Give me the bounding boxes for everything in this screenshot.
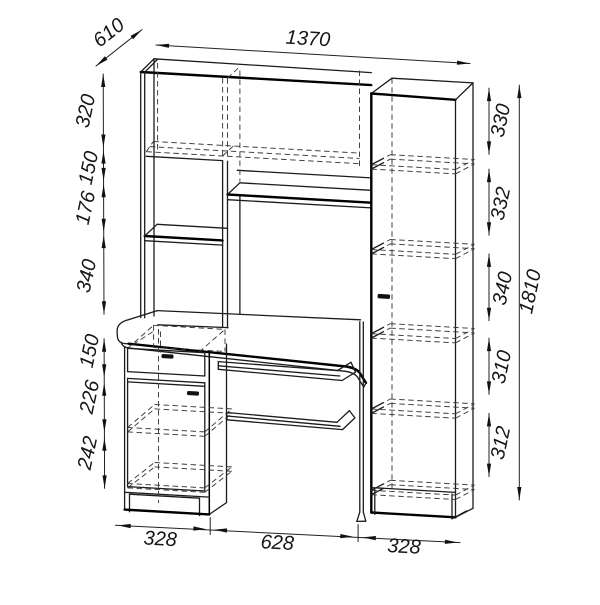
svg-text:328: 328 [143, 527, 177, 551]
svg-text:328: 328 [387, 535, 421, 559]
svg-text:628: 628 [260, 531, 294, 555]
svg-text:1370: 1370 [285, 27, 331, 52]
